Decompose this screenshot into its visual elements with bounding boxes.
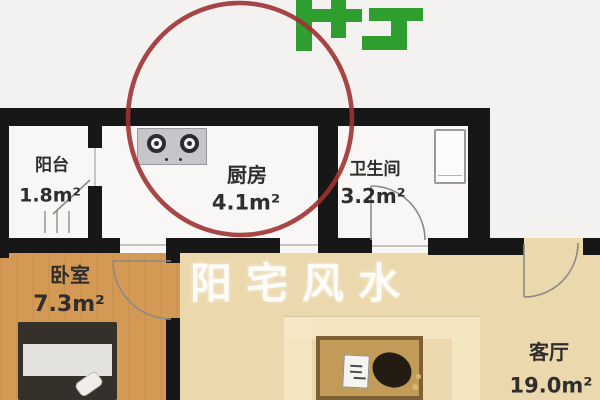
balcony-area: 1.8m² bbox=[19, 187, 81, 206]
wall-bathroom-right bbox=[468, 108, 490, 255]
bathroom-area: 3.2m² bbox=[340, 186, 405, 206]
wall-bedroom-top bbox=[0, 238, 120, 253]
green-logo-partial bbox=[296, 0, 423, 51]
kitchen-floor bbox=[102, 126, 318, 238]
stove-burner-icon bbox=[180, 134, 199, 153]
balcony-rack-line bbox=[44, 211, 46, 233]
balcony-rack-line bbox=[56, 211, 58, 233]
stove-knob-icon bbox=[165, 158, 168, 161]
wall-balcony-kitchen bbox=[88, 126, 102, 253]
bed-sheet bbox=[23, 344, 112, 376]
wall-entry-right bbox=[583, 238, 600, 255]
table-cup bbox=[412, 384, 418, 390]
balcony-door-opening bbox=[88, 148, 102, 186]
floorplan-image: 阳台 1.8m² 厨房 4.1m² 卫生间 3.2m² 卧室 7.3m² 客厅 … bbox=[0, 0, 600, 400]
rug-band-right bbox=[452, 338, 480, 400]
stove-burner-icon bbox=[147, 134, 166, 153]
table-teapot bbox=[367, 346, 418, 394]
table-cup bbox=[416, 374, 421, 379]
wall-entry-left bbox=[428, 238, 524, 255]
kitchen-area: 4.1m² bbox=[212, 193, 280, 214]
bedroom-window-opening bbox=[120, 238, 166, 253]
wall-left bbox=[0, 108, 9, 258]
wall-bedroom-right-lower bbox=[166, 318, 180, 400]
kitchen-label: 厨房 bbox=[227, 165, 267, 185]
stove-knob-icon bbox=[179, 158, 182, 161]
wall-top bbox=[0, 108, 490, 126]
bathroom-label: 卫生间 bbox=[350, 162, 401, 179]
coffee-table bbox=[316, 336, 423, 400]
stove-icon bbox=[137, 128, 207, 165]
living-room-area: 19.0m² bbox=[510, 376, 593, 397]
balcony-label: 阳台 bbox=[35, 158, 69, 175]
bed-furniture bbox=[18, 322, 117, 400]
table-card bbox=[342, 354, 370, 388]
balcony-rack-line bbox=[68, 211, 70, 233]
bedroom-label: 卧室 bbox=[50, 265, 90, 285]
watermark-text: 阳宅风水 bbox=[190, 250, 414, 311]
wall-kitchen-bathroom bbox=[318, 126, 338, 253]
rug-band-left bbox=[284, 318, 312, 400]
wall-bedroom-right-upper bbox=[166, 253, 180, 263]
living-room-label: 客厅 bbox=[529, 342, 569, 362]
balcony-floor bbox=[9, 126, 88, 238]
bathroom-fixture bbox=[434, 129, 466, 184]
bedroom-area: 7.3m² bbox=[33, 294, 105, 316]
